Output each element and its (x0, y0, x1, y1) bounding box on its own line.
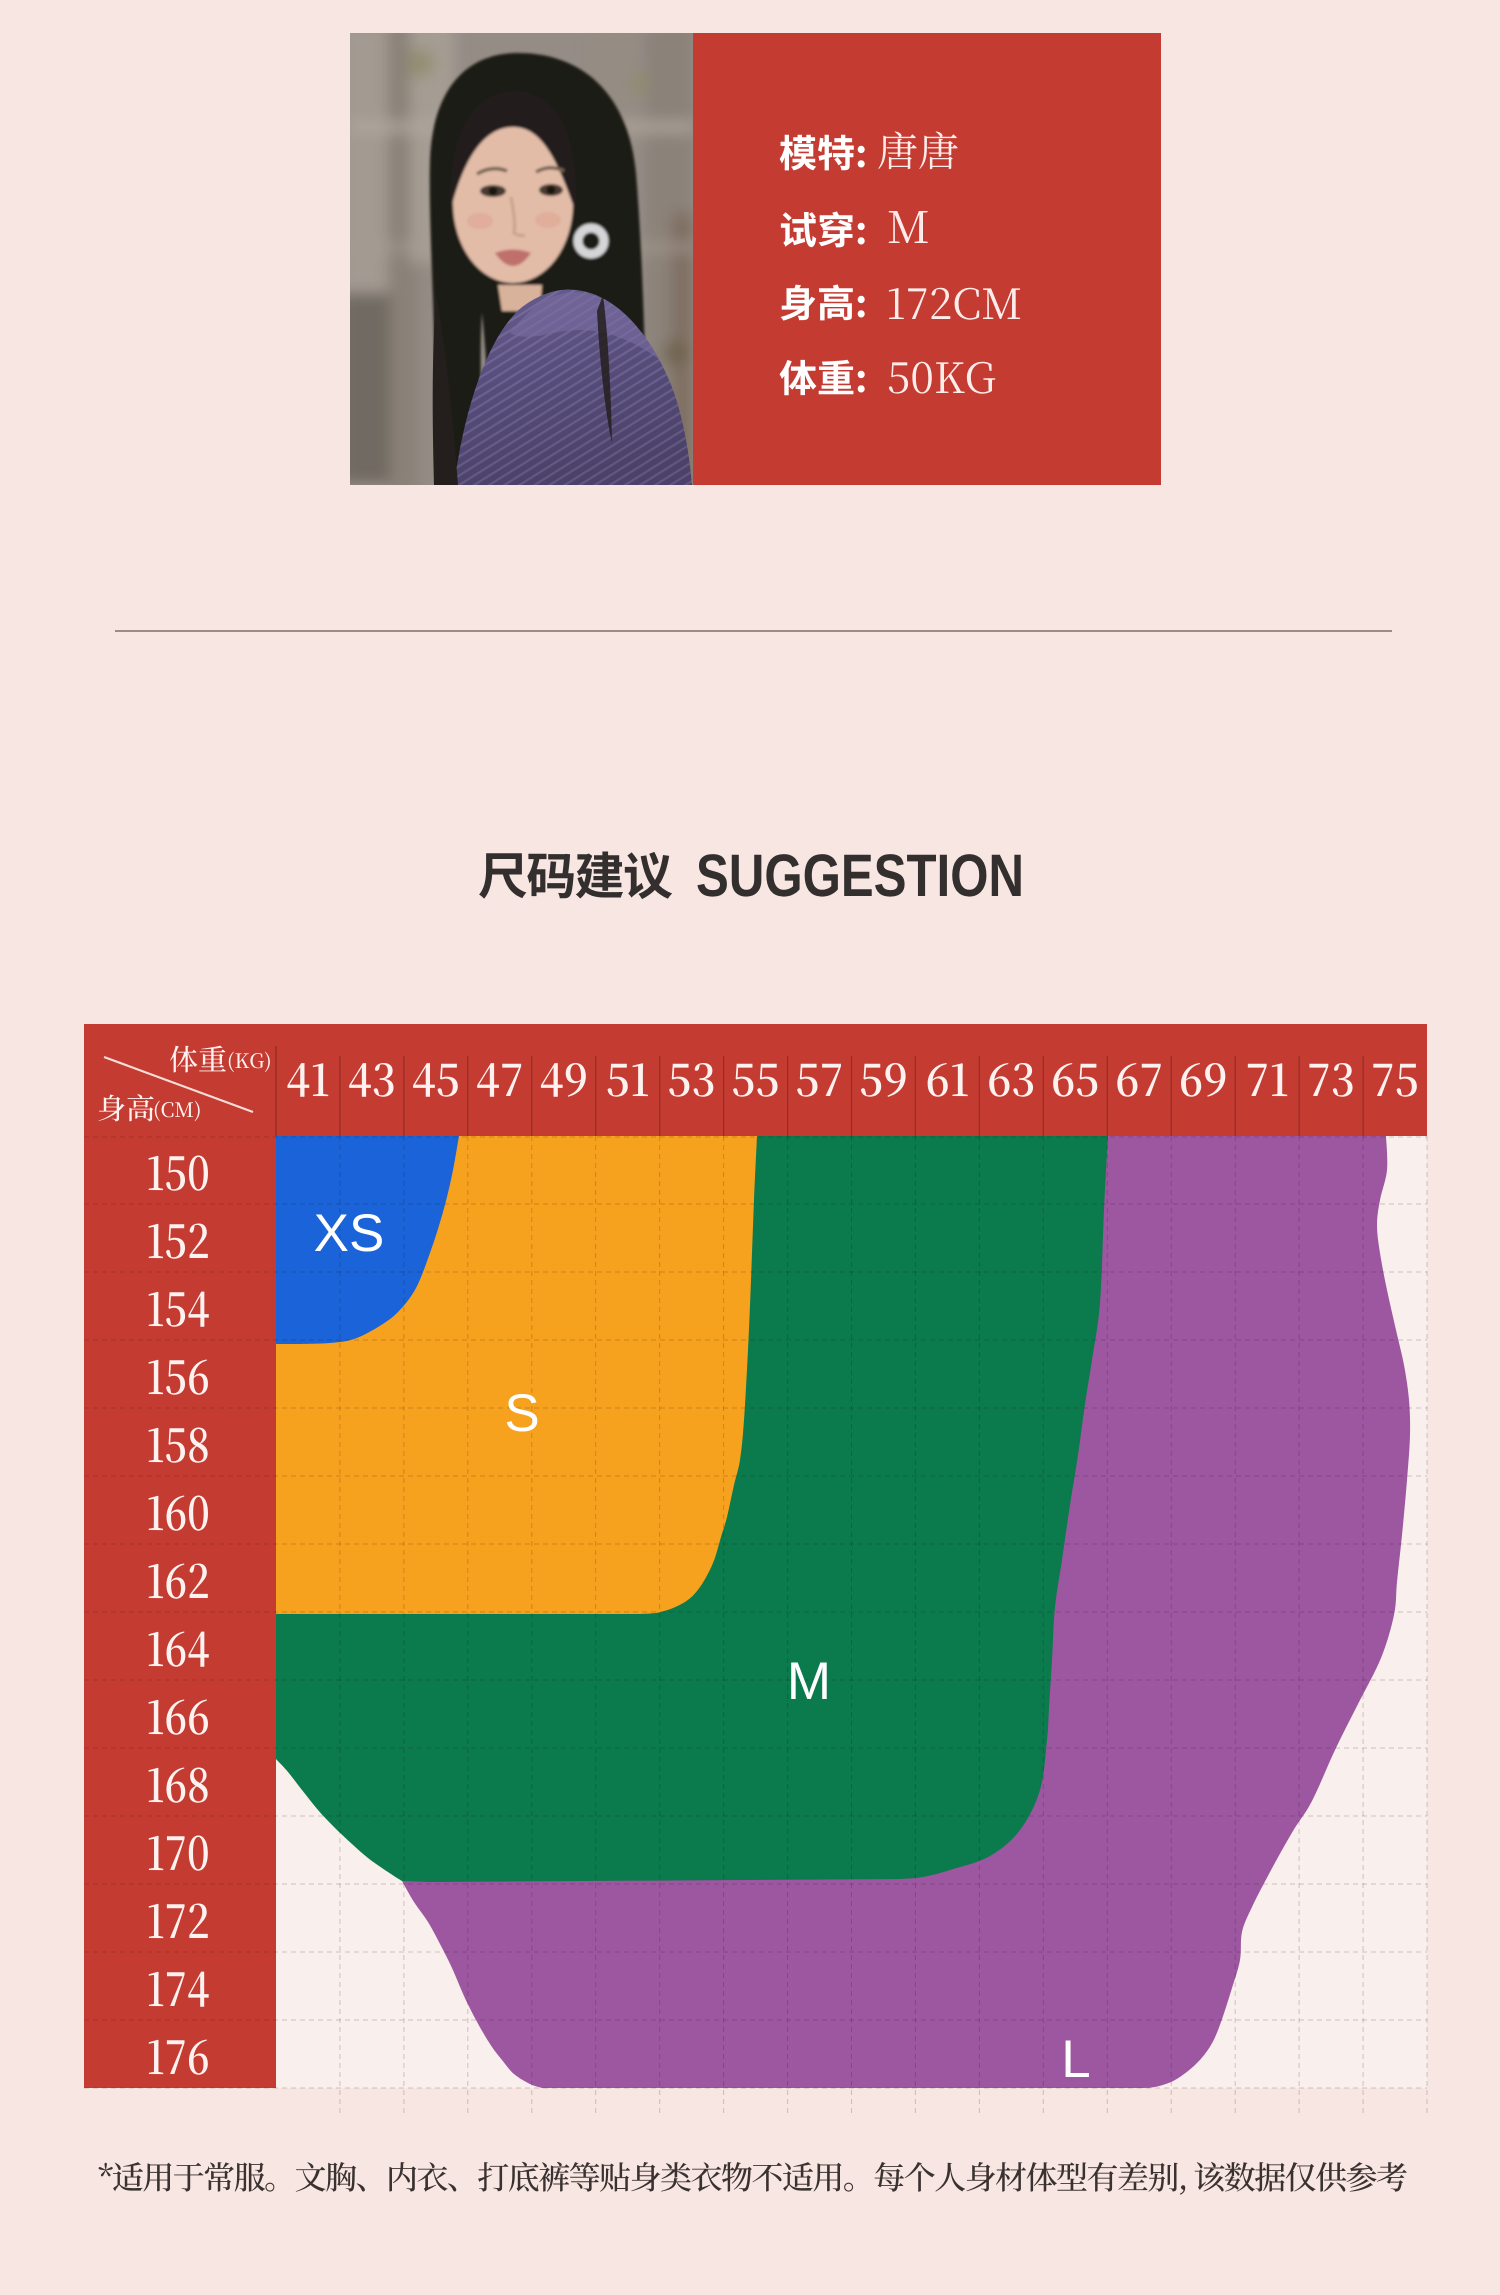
svg-text:M: M (787, 1652, 831, 1711)
svg-text:S: S (504, 1384, 539, 1443)
svg-text:XS: XS (314, 1204, 385, 1263)
svg-text:L: L (1061, 2030, 1090, 2089)
